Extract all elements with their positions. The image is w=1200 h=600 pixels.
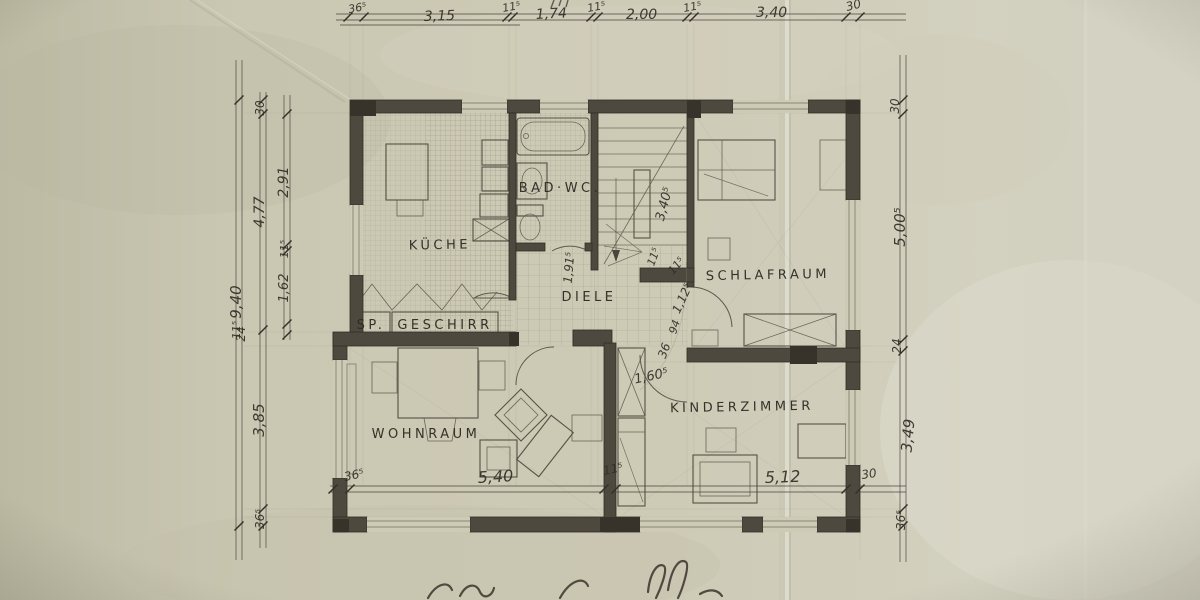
kitchen-livingroom-wall xyxy=(333,332,516,346)
room-label-geschirr: GESCHIRR xyxy=(397,318,492,333)
livingroom-bottom-window xyxy=(367,517,470,532)
kitchen-bath-wall xyxy=(509,113,516,300)
room-label-sp: SP. xyxy=(357,318,386,333)
floor-plan-sheet: 36⁵ 3,15 11⁵ 1,74 11⁵ 2,00 11⁵ 3,40 30 3… xyxy=(0,0,1200,600)
dim-label: 30 xyxy=(253,100,267,116)
dim-label: 4,77 xyxy=(252,196,268,227)
bath-tiles xyxy=(516,113,591,243)
childroom-bottom-window-2 xyxy=(763,517,817,532)
room-label-bad-wc: BAD·WC. xyxy=(519,181,602,196)
stair-bedroom-wall xyxy=(687,113,694,287)
kitchen-top-window xyxy=(462,100,507,113)
dim-label: 1,62 xyxy=(277,274,292,303)
room-label-wohnraum: WOHNRAUM xyxy=(372,427,481,442)
dim-label: 5,00⁵ xyxy=(891,207,909,246)
kitchen-left-window xyxy=(350,205,363,275)
dim-label: 9,40 xyxy=(227,285,245,318)
childroom-right-window xyxy=(846,390,860,465)
dim-label: 2,91 xyxy=(276,166,292,197)
bath-hall-wall xyxy=(516,243,545,251)
dim-label: 3,85 xyxy=(250,403,268,436)
bedroom-top-window xyxy=(733,100,808,113)
dim-label: 11⁵ xyxy=(278,240,291,258)
dim-label: 36⁵ xyxy=(894,510,908,530)
bedroom-childroom-wall xyxy=(687,348,860,362)
dim-label: 24 xyxy=(890,338,904,353)
dim-label: 24 xyxy=(234,326,248,341)
dim-label: 36⁵ xyxy=(253,509,267,529)
dim-label: 3,15 xyxy=(424,8,456,25)
livingroom-childroom-wall xyxy=(604,343,616,532)
room-label-schlafraum: SCHLAFRAUM xyxy=(706,267,830,284)
dim-label: 30 xyxy=(860,466,877,482)
bath-window xyxy=(540,100,588,113)
dim-label: 1,91⁵ xyxy=(561,251,578,284)
room-label-diele: DIELE xyxy=(561,290,616,305)
dim-label: 5,12 xyxy=(764,467,800,487)
dim-label: 3,40 xyxy=(756,5,787,21)
dim-label: 2,00 xyxy=(626,7,657,23)
dim-label: 5,40 xyxy=(477,466,514,487)
kitchen-tiles-dense xyxy=(425,113,513,332)
dim-label: 3,49 xyxy=(898,418,919,453)
dim-label: 30 xyxy=(888,98,902,114)
bedroom-right-window xyxy=(846,200,860,330)
room-label-kueche: KÜCHE xyxy=(409,235,472,253)
room-label-kinderzimmer: KINDERZIMMER xyxy=(670,399,814,417)
childroom-bottom-window xyxy=(640,517,742,532)
